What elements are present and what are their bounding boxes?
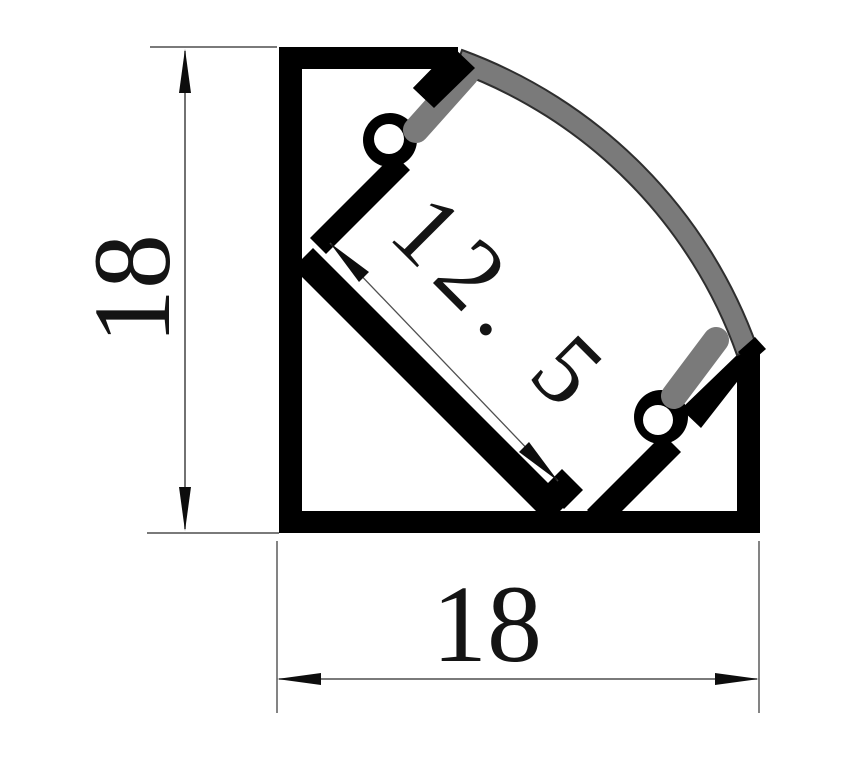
arrowhead-left [277,673,321,685]
clip-groove-top [374,124,404,154]
arrowhead-up [179,49,191,93]
profile-cross-section-drawing: 18 18 12. 5 [0,0,867,760]
vertical-dimension-label: 18 [71,234,193,344]
arrowhead-down [179,487,191,531]
clip-groove-right [643,405,673,435]
left-wall [279,47,302,533]
vertical-dimension: 18 [71,47,279,533]
horizontal-dimension-label: 18 [432,563,542,685]
horizontal-dimension: 18 [277,541,759,713]
right-wall [737,353,760,533]
technical-drawing-canvas: 18 18 12. 5 [0,0,867,760]
slot-dimension-label: 12. 5 [371,173,633,435]
top-flange [279,47,458,69]
arrowhead-right [715,673,759,685]
bottom-wall [279,511,760,533]
